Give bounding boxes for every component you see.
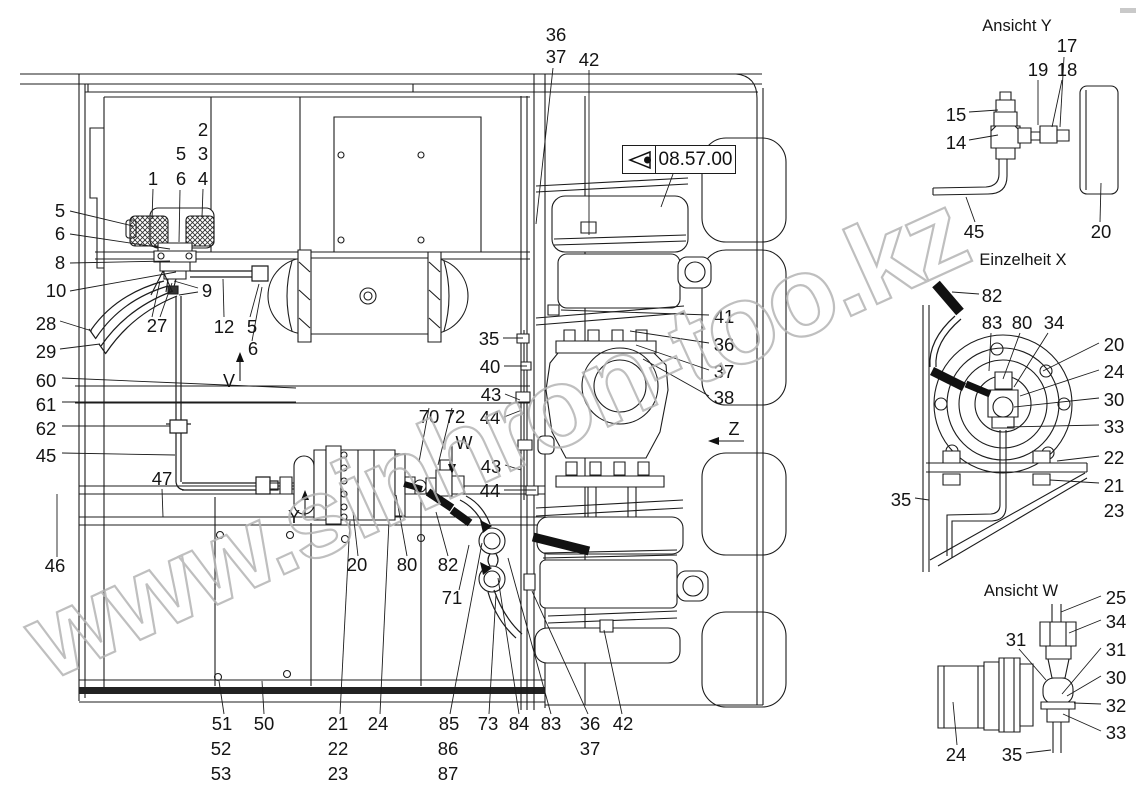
detail-view-ansicht-y (933, 86, 1118, 195)
axle-drive-housing (538, 330, 668, 549)
mounting-plate (334, 117, 481, 252)
scheme-number: 08.57.00 (656, 150, 735, 169)
view-direction-eye-icon (623, 146, 656, 173)
lower-air-bellows (524, 500, 708, 663)
air-reservoir (268, 250, 468, 342)
fender-section-tabs (702, 138, 786, 707)
scheme-number-badge: 08.57.00 (622, 145, 736, 174)
diagram-canvas (0, 0, 1146, 803)
detail-view-einzelheit-x (923, 284, 1087, 572)
detail-view-ansicht-w (938, 604, 1076, 753)
page-corner-artifact (1120, 8, 1136, 13)
diagram-page: 08.57.00 5681028296061624547461562342791… (0, 0, 1146, 803)
upper-air-bellows (536, 178, 711, 325)
